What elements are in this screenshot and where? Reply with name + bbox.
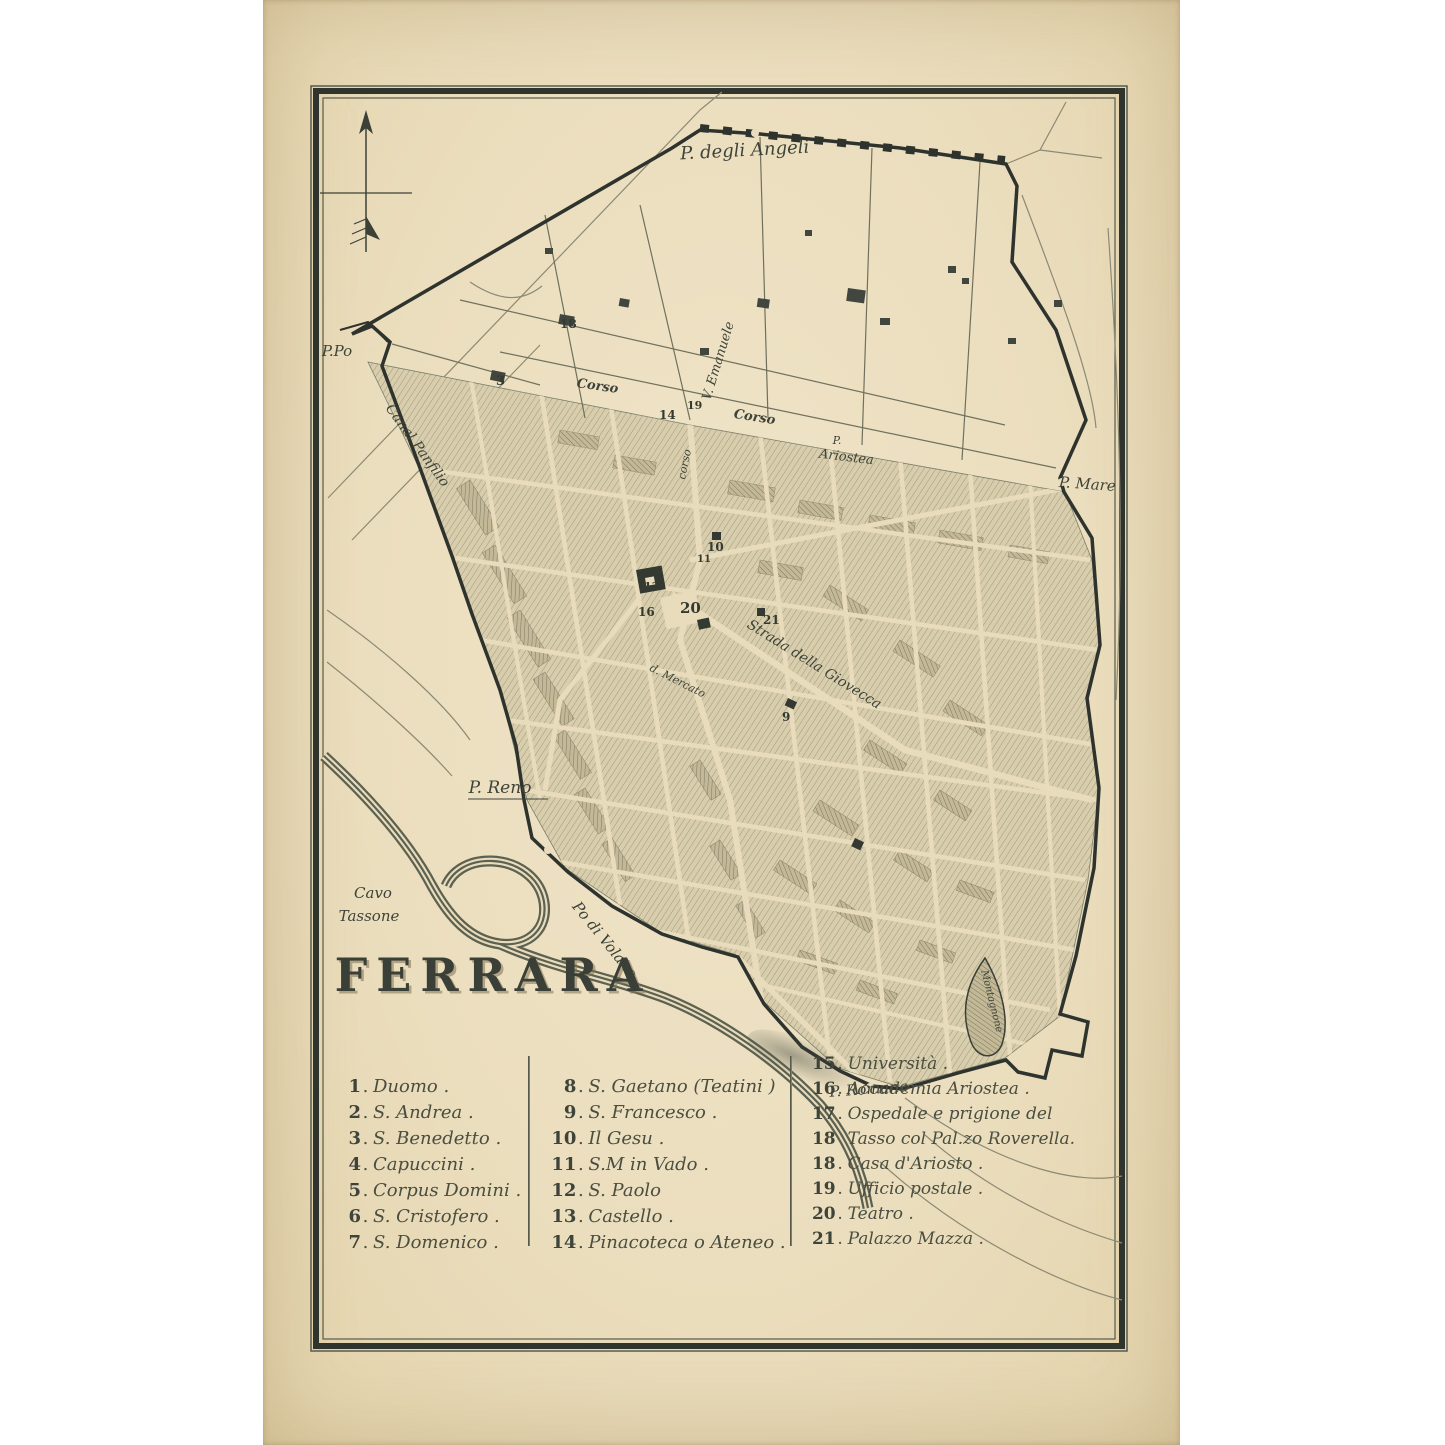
legend-label: Casa d'Ariosto . [848,1152,984,1177]
legend-num: 13 [548,1204,576,1230]
legend-column-3: 15.Università . 16.Accademia Ariostea . … [796,1050,1075,1256]
legend-dot: . [361,1074,370,1100]
marker-18: 18 [560,317,577,331]
legend-divider [790,1056,792,1246]
marker-13: 13 [644,580,659,593]
legend-num: 11 [548,1152,576,1178]
legend-label: S. Paolo [588,1178,661,1204]
legend-label: Università . [848,1052,948,1077]
legend-label: Il Gesu . [588,1126,664,1152]
legend-num: 2 [333,1100,361,1126]
legend-num: 21 [808,1227,836,1252]
legend-num: 18 [808,1152,836,1177]
legend-label: Palazzo Mazza . [848,1227,984,1252]
label-tassone: Tassone [339,907,400,925]
legend-entry: 2.S. Andrea . [333,1100,524,1126]
legend-num: 18 [808,1127,836,1152]
legend-label: Capuccini . [373,1152,475,1178]
legend-label: Ufficio postale . [848,1177,984,1202]
marker-20: 20 [680,599,701,617]
legend-entry: 20.Teatro . [808,1202,1075,1227]
legend-dot: . [836,1152,845,1177]
legend-entry: 5.Corpus Domini . [333,1178,524,1204]
marker-11: 11 [697,554,711,565]
legend-label: S. Benedetto . [373,1126,501,1152]
legend-label: Accademia Ariostea . [848,1077,1030,1102]
legend-entry: 19.Ufficio postale . [808,1177,1075,1202]
legend-num: 6 [333,1204,361,1230]
legend-dot: . [836,1077,845,1102]
legend-label: S. Francesco . [588,1100,717,1126]
legend-num: 9 [548,1100,576,1126]
legend-num: 14 [548,1230,576,1256]
legend-num: 19 [808,1177,836,1202]
legend-dot: . [576,1074,585,1100]
label-p-reno: P. Reno [468,778,532,798]
legend-label: Teatro . [848,1202,914,1227]
label-v-emanuele: V. Emanuele [700,320,738,402]
legend-column-1: 1.Duomo . 2.S. Andrea . 3.S. Benedetto .… [333,1050,524,1256]
marker-10: 10 [707,540,724,554]
legend-dot: . [836,1227,845,1252]
map-legend: 1.Duomo . 2.S. Andrea . 3.S. Benedetto .… [333,1050,1075,1256]
legend-dot: . [836,1202,845,1227]
marker-14: 14 [659,408,676,422]
marker-19: 19 [687,399,702,412]
legend-label: S. Cristofero . [373,1204,500,1230]
label-cavo: Cavo [354,884,392,902]
label-corso-west: Corso [576,376,620,397]
legend-dot: . [361,1152,370,1178]
legend-label: S. Gaetano (Teatini ) [588,1074,775,1100]
legend-entry: 3.S. Benedetto . [333,1126,524,1152]
legend-dot: . [836,1052,845,1077]
legend-entry: 13.Castello . [548,1204,785,1230]
legend-label: Ospedale e prigione del [848,1102,1053,1127]
legend-num: 20 [808,1202,836,1227]
legend-dot: . [361,1100,370,1126]
label-piazza-p: P. [832,434,842,447]
marker-3: 3 [496,374,505,389]
legend-dot: . [836,1102,845,1127]
legend-dot: . [361,1204,370,1230]
legend-entry: 18 Tasso col Pal.zo Roverella. [808,1127,1075,1152]
label-corso-east: Corso [733,407,777,428]
legend-dot: . [576,1126,585,1152]
label-p-po: P.Po [321,342,352,360]
legend-dot [836,1127,845,1152]
legend-entry: 6.S. Cristofero . [333,1204,524,1230]
legend-num: 16 [808,1077,836,1102]
marker-9: 9 [782,710,790,724]
legend-dot: . [576,1152,585,1178]
legend-entry: 11.S.M in Vado . [548,1152,785,1178]
legend-entry: 16.Accademia Ariostea . [808,1077,1075,1102]
legend-num: 8 [548,1074,576,1100]
legend-num: 15 [808,1052,836,1077]
legend-entry: 14.Pinacoteca o Ateneo . [548,1230,785,1256]
legend-label: Duomo . [373,1074,449,1100]
legend-entry: 1.Duomo . [333,1074,524,1100]
legend-entry: 8.S. Gaetano (Teatini ) [548,1074,785,1100]
legend-label: Corpus Domini . [373,1178,521,1204]
marker-16: 16 [638,605,655,619]
legend-label: Tasso col Pal.zo Roverella. [848,1127,1075,1152]
legend-dot: . [576,1204,585,1230]
legend-dot: . [576,1178,585,1204]
legend-label: S. Domenico . [373,1230,499,1256]
legend-num: 10 [548,1126,576,1152]
page-background: { "title": "FERRARA", "map": { "labels":… [0,0,1445,1445]
legend-dot: . [576,1230,585,1256]
legend-num: 3 [333,1126,361,1152]
legend-dot: . [576,1100,585,1126]
legend-label: S.M in Vado . [588,1152,709,1178]
legend-num: 12 [548,1178,576,1204]
legend-num: 4 [333,1152,361,1178]
legend-label: Castello . [588,1204,673,1230]
marker-21: 21 [763,613,780,627]
legend-entry: 7.S. Domenico . [333,1230,524,1256]
legend-column-2: 8.S. Gaetano (Teatini ) 9.S. Francesco .… [534,1050,785,1256]
legend-dot: . [836,1177,845,1202]
legend-num: 7 [333,1230,361,1256]
legend-divider [528,1056,530,1246]
legend-entry: 15.Università . [808,1052,1075,1077]
legend-entry: 18.Casa d'Ariosto . [808,1152,1075,1177]
map-title: FERRARA [323,948,663,1002]
scanned-page: P. degli Angeli P.Po Canal Panfilio Cors… [263,0,1180,1445]
legend-label: Pinacoteca o Ateneo . [588,1230,785,1256]
legend-entry: 4.Capuccini . [333,1152,524,1178]
legend-entry: 10.Il Gesu . [548,1126,785,1152]
legend-num: 5 [333,1178,361,1204]
legend-num: 17 [808,1102,836,1127]
legend-label: S. Andrea . [373,1100,474,1126]
legend-entry: 17.Ospedale e prigione del [808,1102,1075,1127]
legend-dot: . [361,1126,370,1152]
legend-dot: . [361,1178,370,1204]
label-p-mare: P. Mare [1057,473,1116,495]
legend-entry: 12.S. Paolo [548,1178,785,1204]
legend-num: 1 [333,1074,361,1100]
legend-dot: . [361,1230,370,1256]
compass-north-arrow [320,110,412,252]
legend-entry: 21.Palazzo Mazza . [808,1227,1075,1252]
label-p-degli-angeli: P. degli Angeli [679,137,810,165]
legend-entry: 9.S. Francesco . [548,1100,785,1126]
